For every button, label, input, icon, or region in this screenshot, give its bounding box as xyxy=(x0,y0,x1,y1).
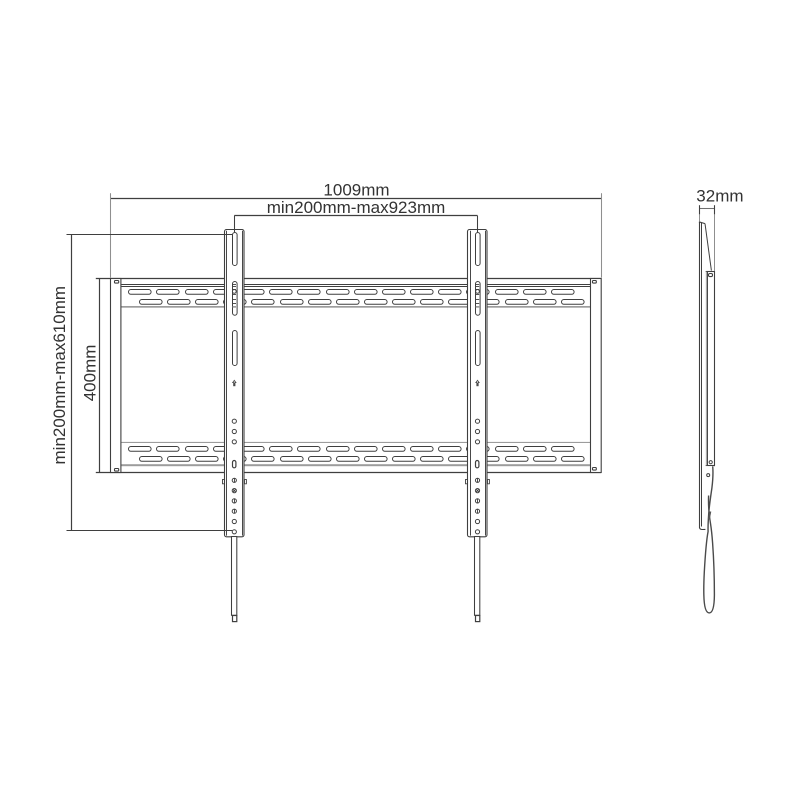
svg-text:min200mm-max610mm: min200mm-max610mm xyxy=(50,286,69,465)
svg-text:400mm: 400mm xyxy=(80,345,99,402)
svg-text:32mm: 32mm xyxy=(696,187,743,206)
svg-text:min200mm-max923mm: min200mm-max923mm xyxy=(267,198,446,217)
svg-text:1009mm: 1009mm xyxy=(323,180,389,199)
